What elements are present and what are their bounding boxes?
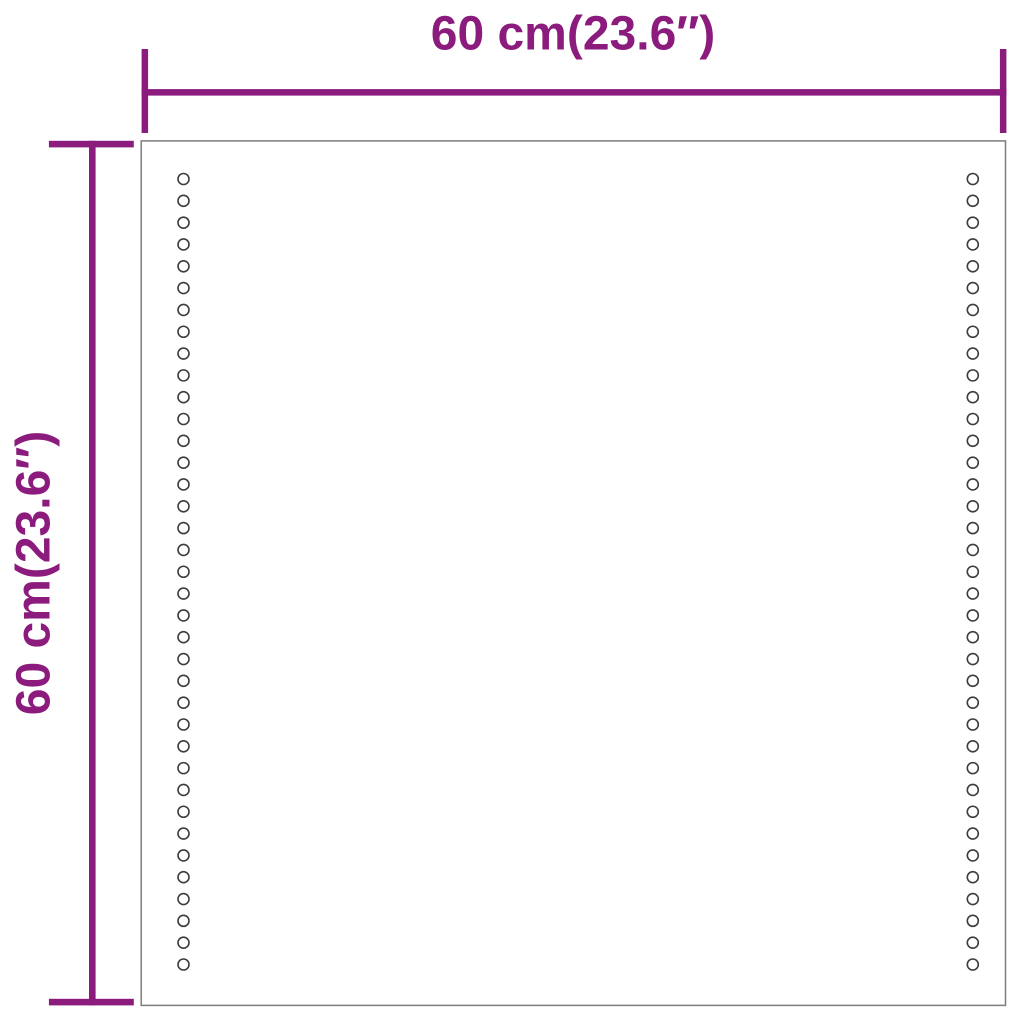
svg-text:60 cm(23.6″): 60 cm(23.6″) <box>431 8 715 61</box>
svg-text:60 cm(23.6″): 60 cm(23.6″) <box>8 431 61 715</box>
